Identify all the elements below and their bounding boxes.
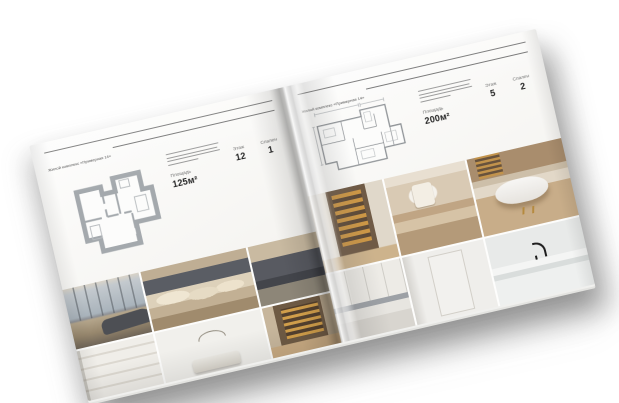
photo-white-kitchen [326,259,415,343]
floor-plan-right [302,90,422,186]
info-block: Площадь 200м² Этаж 5 Спален 2 [417,61,547,159]
floor-plan-left [50,153,174,266]
floor-plan-right-drawing [302,90,422,186]
photo-wine-cellar [308,179,399,273]
magazine-spread: Жилой комплекс «Примерная 14» [29,29,595,401]
scene: Жилой комплекс «Примерная 14» [0,0,619,403]
floor-plan-left-drawing [50,153,174,266]
spec-area: Площадь 200м² [422,97,479,126]
spec-area: Площадь 125м² [170,160,227,189]
info-block: Площадь 125м² Этаж 12 Спален 1 [165,124,299,240]
